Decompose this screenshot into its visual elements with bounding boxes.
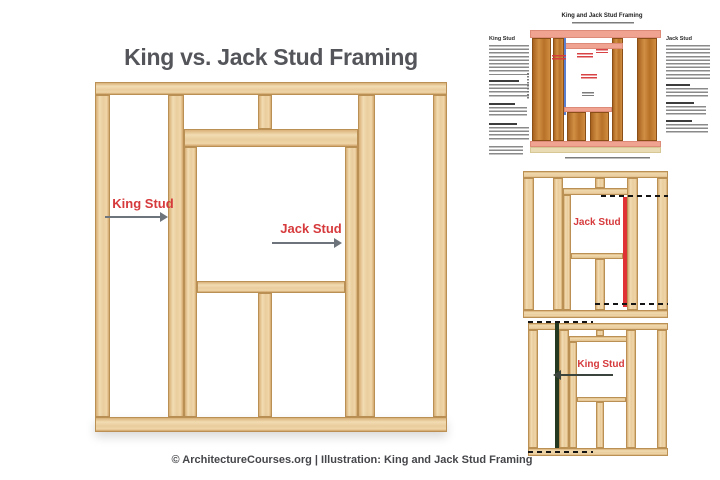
thumb-top-cripple <box>595 178 605 188</box>
bottom-plate <box>95 417 447 432</box>
thumb-top-cripple <box>596 330 604 336</box>
thumb-jack-stud-left <box>569 342 577 448</box>
thumb-right-end-stud <box>657 178 668 310</box>
mini-footer-band <box>530 147 661 153</box>
mini-red-annotation <box>577 53 593 58</box>
extent-dashed-line-bottom <box>595 303 668 305</box>
mini-red-annotation <box>596 49 608 53</box>
thumb-bottom-plate <box>523 310 668 318</box>
text-placeholder <box>489 146 523 156</box>
jack-stud-right <box>345 147 358 417</box>
text-placeholder <box>489 103 515 105</box>
infographic-title: King and Jack Stud Framing <box>527 13 677 19</box>
text-placeholder <box>666 106 706 115</box>
text-placeholder <box>489 80 519 82</box>
jack-stud-arrow-icon <box>272 242 335 244</box>
king-thumbnail: King Stud <box>528 321 668 457</box>
text-placeholder <box>489 123 517 125</box>
top-cripple-stud <box>258 95 272 129</box>
jack-stud-highlight-line <box>623 197 627 307</box>
infographic-king-heading: King Stud <box>489 36 531 42</box>
infographic-king-column: King Stud <box>489 36 531 156</box>
bottom-cripple-stud <box>258 293 272 417</box>
king-thumb-label: King Stud <box>565 359 637 370</box>
mini-king-stud-left <box>553 38 564 141</box>
text-placeholder <box>666 102 694 104</box>
right-end-stud <box>433 95 447 417</box>
jack-stud-left <box>184 147 197 417</box>
thumb-king-stud-left <box>559 330 569 448</box>
main-frame-photo <box>95 82 447 432</box>
text-placeholder <box>489 84 529 98</box>
text-placeholder <box>489 127 529 141</box>
page-title: King vs. Jack Stud Framing <box>95 44 447 71</box>
king-stud-right <box>358 95 375 417</box>
mini-king-stud-right <box>612 38 623 141</box>
king-thumb-arrow-icon <box>560 374 613 376</box>
infographic-subtitle-placeholder <box>572 22 634 24</box>
illustration-canvas: King vs. Jack Stud Framing King Stud Jac… <box>0 0 720 480</box>
mini-bottom-cripple <box>567 112 586 141</box>
mini-red-annotation <box>552 55 566 60</box>
thumb-top-plate <box>523 171 668 178</box>
thumb-left-end-stud <box>523 178 534 310</box>
thumb-left-end-stud <box>528 330 538 448</box>
text-placeholder <box>666 120 692 122</box>
mini-red-annotation <box>581 74 597 79</box>
infographic-caption-placeholder <box>565 157 650 160</box>
mini-king-highlight-line <box>564 38 566 115</box>
text-placeholder <box>666 45 710 79</box>
infographic-jack-heading: Jack Stud <box>666 36 712 42</box>
thumb-right-end-stud <box>657 330 667 448</box>
left-end-stud <box>95 95 110 417</box>
king-stud-arrow-icon <box>105 216 161 218</box>
jack-thumbnail: Jack Stud <box>523 171 668 318</box>
mini-bottom-cripple <box>590 112 609 141</box>
thumb-king-stud-left <box>553 178 563 310</box>
king-stud-highlight-line <box>555 323 559 454</box>
header-beam <box>184 129 358 147</box>
thumb-king-stud-right <box>626 330 636 448</box>
text-placeholder <box>489 45 529 75</box>
thumb-king-stud-right <box>627 178 638 310</box>
thumb-jack-stud-left <box>563 195 571 310</box>
mini-left-end-stud <box>532 38 551 141</box>
mini-sill-annotation <box>582 92 594 96</box>
text-placeholder <box>666 84 690 86</box>
infographic-jack-column: Jack Stud <box>666 36 712 133</box>
king-stud-label: King Stud <box>112 196 174 211</box>
top-plate <box>95 82 447 95</box>
window-sill <box>197 281 345 293</box>
attribution-text: © ArchitectureCourses.org | Illustration… <box>150 454 554 466</box>
thumb-bottom-cripple <box>596 402 604 448</box>
jack-thumb-label: Jack Stud <box>561 217 633 228</box>
text-placeholder <box>489 107 527 118</box>
text-placeholder <box>666 88 708 97</box>
jack-stud-label: Jack Stud <box>280 221 342 236</box>
infographic-diagram <box>530 28 661 152</box>
extent-dashed-line-bottom <box>528 451 593 453</box>
mini-top-plates <box>530 30 661 38</box>
mini-vertical-caption-placeholder <box>527 73 529 99</box>
mini-header <box>564 43 623 49</box>
text-placeholder <box>666 124 708 133</box>
king-stud-left <box>168 95 184 417</box>
extent-dashed-line-top <box>528 321 593 323</box>
mini-right-end-stud <box>637 38 657 141</box>
thumb-top-plate <box>528 323 668 330</box>
extent-dashed-line-top <box>601 195 668 197</box>
infographic-thumbnail: King and Jack Stud Framing King Stud Jac… <box>487 10 714 166</box>
